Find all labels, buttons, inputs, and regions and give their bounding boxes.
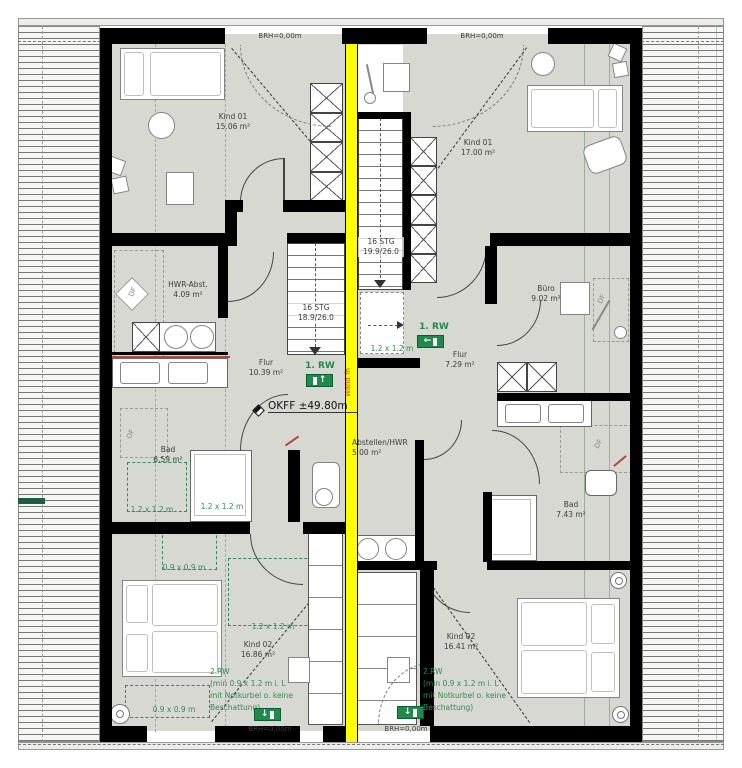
room-area: 7.29 m² (434, 360, 486, 370)
ceiling-lamp-icon (614, 326, 627, 339)
mattress (521, 602, 587, 646)
room-name: Kind 02 (433, 632, 489, 642)
escape-route-1-label: 1. RW (414, 322, 454, 332)
wall-interior (483, 492, 492, 562)
staircase-arrow-down (374, 280, 386, 288)
wall-interior (487, 561, 630, 570)
room-name: Flur (240, 358, 292, 368)
sill-height-label: BRH=0,00m (250, 32, 310, 41)
room-name: Büro (518, 284, 574, 294)
room-area: 16.41 m² (433, 642, 489, 652)
stair-steps: 16 STG (288, 303, 344, 313)
wall-top (100, 28, 225, 44)
window-zone-label: 0.9 x 0.9 m (158, 563, 210, 572)
wall-interior (112, 352, 228, 355)
wall-interior (283, 200, 345, 212)
wall-bottom (323, 726, 345, 742)
mattress (521, 650, 587, 694)
room-name: Kind 02 (230, 640, 286, 650)
stair-run-arrow (368, 325, 398, 326)
eave-strip-top (18, 18, 724, 26)
dresser (383, 63, 410, 92)
wall-outer-right (630, 28, 642, 742)
escape2-line: mit Notkurbel o. keine (423, 690, 515, 702)
pillow (591, 604, 615, 644)
escape2-line: (min 0.9 x 1.2 m i. L (210, 678, 302, 690)
escape2-line: 2.RW (210, 666, 302, 678)
room-label-kind02-left: Kind 02 16.86 m² (230, 640, 286, 660)
room-area: 16.86 m² (230, 650, 286, 660)
room-name: HWR-Abst. (160, 280, 216, 290)
wall-interior (100, 233, 228, 246)
toilet (585, 470, 617, 496)
pillow (126, 585, 148, 623)
wall-interior (303, 522, 345, 534)
sill-height-label: BRH=0,00m (452, 32, 512, 41)
wall-interior (288, 450, 300, 522)
room-label-kind01-right: Kind 01 17.00 m² (450, 138, 506, 158)
stair-label-right: 16 STG 19.9/26.0 (358, 237, 404, 257)
room-area: 5.00 m² (352, 448, 420, 458)
stair-label-left: 16 STG 18.9/26.0 (288, 303, 344, 323)
window-zone-label: 1.2 x 1.2 m (366, 344, 418, 353)
window-zone-label: 1.2 x 1.2 m (126, 505, 178, 514)
axis-line-green (716, 26, 717, 742)
wardrobe (410, 137, 437, 283)
window-zone-label: 1.2 x 1.2 m (196, 502, 248, 511)
closet-strip-left (308, 533, 343, 725)
armchair-seat (315, 488, 333, 506)
axis-line (225, 44, 226, 732)
stair-run-arrowhead (397, 321, 404, 329)
exit-sign-icon: ← (417, 335, 444, 348)
wall-interior (490, 233, 630, 246)
roof-hatch-left (18, 26, 100, 742)
room-label-flur-right: Flur 7.29 m² (434, 350, 486, 370)
room-area: 6.59 m² (140, 455, 196, 465)
wardrobe-cell (410, 166, 437, 195)
room-label-flur-left: Flur 10.39 m² (240, 358, 292, 378)
table-round (148, 112, 175, 139)
room-name: Bad (543, 500, 599, 510)
roof-dashed-line-bottom (18, 744, 724, 745)
vent-icon (612, 706, 629, 723)
exit-panel (270, 711, 274, 719)
sink (548, 404, 584, 423)
washing-machine (190, 325, 214, 349)
exit-panel (433, 338, 437, 346)
escape2-line: (min 0.9 x 1.2 m i. L (423, 678, 515, 690)
escape-route-2-note: 2.RW (min 0.9 x 1.2 m i. L mit Notkurbel… (210, 666, 302, 714)
mattress (152, 631, 218, 673)
roof-window-zone (560, 425, 632, 473)
wardrobe-cell (410, 254, 437, 283)
arrow-up-icon: ↑ (319, 376, 327, 385)
room-label-hwr-abst: HWR-Abst. 4.09 m² (160, 280, 216, 300)
exit-sign-icon: ↑ (306, 374, 333, 387)
wall-stairhead (287, 233, 345, 243)
mattress (150, 52, 221, 96)
wall-interior (485, 246, 497, 304)
escape-route-2-note: 2.RW (min 0.9 x 1.2 m i. L mit Notkurbel… (423, 666, 515, 714)
floor-plan: Kind 01 15.06 m² Kind 01 17.00 m² HWR-Ab… (0, 0, 742, 768)
washing-machine (164, 325, 188, 349)
room-label-bad-left: Bad 6.59 m² (140, 445, 196, 465)
roof-hatch-right (642, 26, 724, 742)
table-round (531, 52, 555, 76)
exit-panel (313, 377, 317, 385)
pillow (598, 89, 617, 128)
sink (505, 404, 541, 423)
sill-height-label: BRH=0,00m (240, 725, 300, 734)
room-area: 10.39 m² (240, 368, 292, 378)
room-area: 15.06 m² (205, 122, 261, 132)
window-zone-label: 0.9 x 0.9 m (148, 705, 200, 714)
stair-rise-run: 18.9/26.0 (288, 313, 344, 323)
section-line-red (112, 356, 230, 358)
mattress (531, 89, 594, 128)
mattress (152, 584, 218, 626)
exit-sign-icon: ↓ (254, 708, 281, 721)
room-name: Kind 01 (450, 138, 506, 148)
room-label-kind02-right: Kind 02 16.41 m² (433, 632, 489, 652)
escape2-line: Beschattung) (423, 702, 515, 714)
vent-icon (610, 572, 627, 589)
sink (168, 362, 208, 384)
wall-top (548, 28, 642, 44)
arrow-left-icon: ← (424, 337, 432, 346)
escape2-line: mit Notkurbel o. keine (210, 690, 302, 702)
sill-height-label: BRH=0,00m (376, 725, 436, 734)
chair (111, 176, 130, 195)
wall-outer-left (100, 28, 112, 742)
wardrobe-cell (410, 225, 437, 254)
wardrobe-cell (497, 362, 527, 392)
wall-interior (497, 393, 630, 401)
wardrobe-cell (310, 172, 343, 202)
stair-steps: 16 STG (358, 237, 404, 247)
chair (612, 61, 629, 78)
room-area: 4.09 m² (160, 290, 216, 300)
wall-interior (100, 522, 250, 534)
washing-machine (385, 538, 407, 560)
party-wall-label: Wand fh (344, 368, 352, 397)
door-leaf (283, 158, 285, 202)
appliance-box (132, 322, 160, 352)
room-name: Flur (434, 350, 486, 360)
roof-axis-dashed-right (698, 26, 699, 742)
room-label-buero: Büro 9.02 m² (518, 284, 574, 304)
staircase-centerline (315, 243, 316, 347)
arrow-down-icon: ↓ (261, 710, 269, 719)
vent-icon (110, 704, 130, 724)
wardrobe-cell (310, 142, 343, 172)
wardrobe-cell (410, 195, 437, 224)
wall-stairwell (403, 112, 411, 290)
pillow (591, 652, 615, 692)
escape2-line: 2.RW (423, 666, 515, 678)
exit-sign-icon: ↓ (397, 706, 424, 719)
pillow (124, 52, 144, 96)
washing-machine (357, 538, 379, 560)
wall-bottom (100, 726, 147, 742)
staircase-left (287, 243, 345, 355)
level-label: OKFF ±49.80m (268, 400, 358, 413)
room-name: Bad (140, 445, 196, 455)
window-zone-label: 1.2 x 1.2 m (247, 622, 299, 631)
ceiling-lamp-icon (364, 92, 376, 104)
wall-bottom (430, 726, 642, 742)
roof-axis-dashed-left (42, 26, 43, 742)
stair-rise-run: 19.9/26.0 (358, 247, 404, 257)
wardrobe-cell (527, 362, 557, 392)
room-label-bad-right: Bad 7.43 m² (543, 500, 599, 520)
room-name: Abstellen/HWR (352, 438, 420, 448)
wardrobe-cell (410, 137, 437, 166)
wardrobe (497, 362, 557, 392)
room-label-abstellen: Abstellen/HWR 5.00 m² (352, 438, 420, 458)
exit-panel (413, 709, 417, 717)
room-label-kind01-left: Kind 01 15.06 m² (205, 112, 261, 132)
arrow-down-icon: ↓ (404, 708, 412, 717)
sink (120, 362, 160, 384)
pillow (126, 634, 148, 672)
room-name: Kind 01 (205, 112, 261, 122)
wall-interior (415, 440, 424, 563)
green-marker-bar (18, 498, 45, 504)
room-area: 7.43 m² (543, 510, 599, 520)
wall-interior (218, 246, 228, 318)
room-area: 17.00 m² (450, 148, 506, 158)
staircase-arrow-down (309, 347, 321, 355)
room-area: 9.02 m² (518, 294, 574, 304)
wall-top (342, 28, 427, 44)
desk (166, 172, 194, 205)
escape-route-1-label: 1. RW (300, 361, 340, 371)
shower-inner (491, 499, 531, 555)
